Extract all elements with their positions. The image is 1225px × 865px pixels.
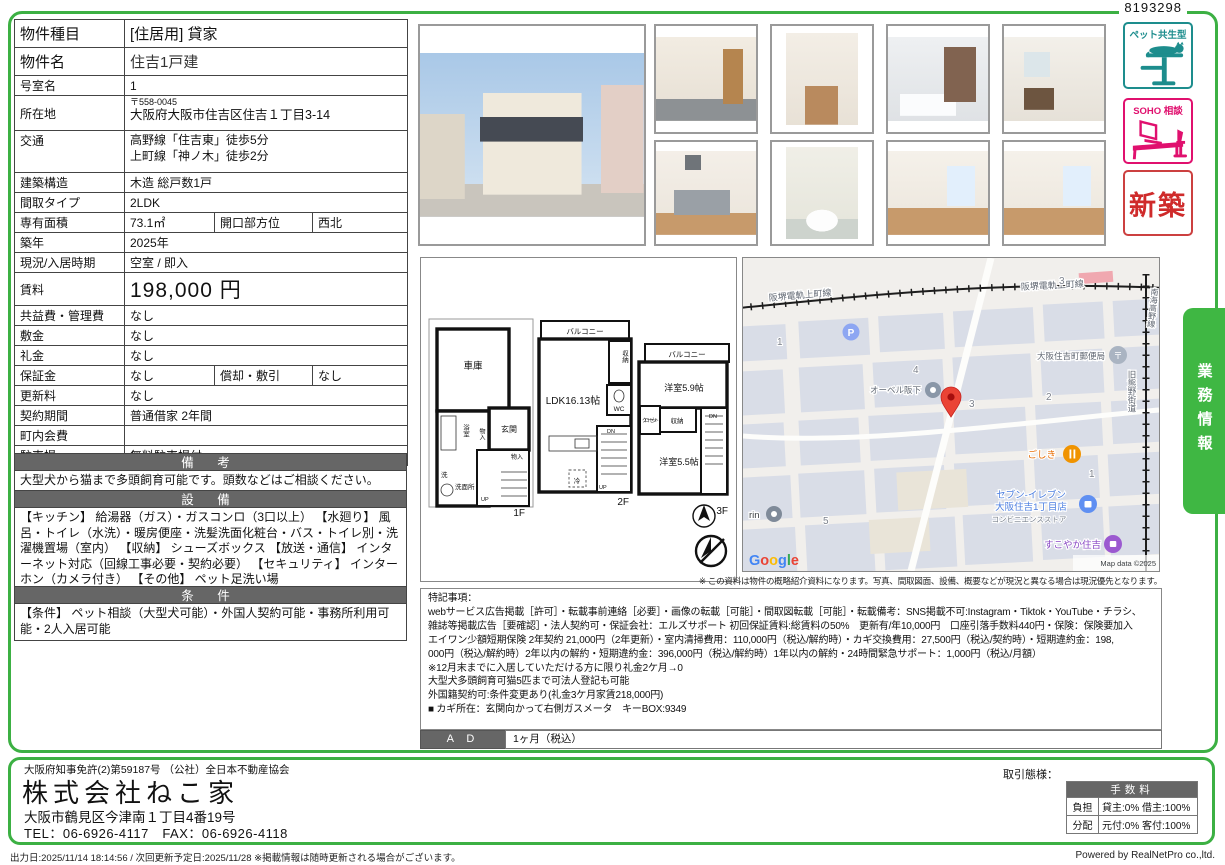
cell-label: 築年 — [15, 233, 125, 253]
photo-bathroom — [886, 24, 990, 134]
badge-soho-label: SOHO 相談 — [1133, 103, 1183, 117]
cell-label: 償却・敷引 — [215, 366, 313, 386]
restaurant-fork — [1070, 450, 1072, 459]
document-id: 8193298 — [1119, 0, 1187, 15]
block-number: 3 — [969, 399, 975, 410]
room-storage-3f: 収納 — [671, 416, 684, 425]
floorplan-box: 車庫 玄関 浴室 物入 物入 洗 洗面所 UP 1F バルコニー LDK16.1… — [420, 257, 737, 582]
store-bag — [1085, 501, 1092, 508]
table-row: 現況/入居時期空室 / 即入 — [15, 253, 408, 273]
balcony-2f: バルコニー — [566, 327, 603, 336]
cell-label: 物件名 — [15, 48, 125, 76]
table-row: 間取タイプ2LDK — [15, 193, 408, 213]
output-date-note: 出力日:2025/11/14 18:14:56 / 次回更新予定日:2025/1… — [10, 850, 461, 864]
table-row: 町内会費 — [15, 426, 408, 446]
room-ldk: LDK16.13帖 — [546, 394, 600, 407]
sukoyaka-label: すこやか住吉 — [1044, 539, 1101, 551]
transaction-type-title: 取引態様： — [1003, 766, 1058, 782]
conditions-text: 【条件】 ペット相談（大型犬可能）・外国人契約可能・事務所利用可能・2人入居可能 — [14, 603, 407, 641]
cell-value: 普通借家 2年間 — [125, 406, 408, 426]
cell-value: 73.1㎡ — [125, 213, 215, 233]
cell-value: 2LDK — [125, 193, 408, 213]
badge-soho: SOHO 相談 — [1123, 98, 1193, 164]
cell-label: 礼金 — [15, 346, 125, 366]
restaurant-icon — [1063, 445, 1081, 463]
block-number: 4 — [913, 365, 919, 376]
table-row: 賃料198,000 円 — [15, 273, 408, 306]
seven-eleven-label-2: 大阪住吉1丁目店 — [995, 501, 1067, 513]
cell-label: 現況/入居時期 — [15, 253, 125, 273]
table-row: 手数料 — [1067, 782, 1198, 798]
room-wash: 洗 — [441, 470, 448, 479]
ad-value: 1ヶ月（税込） — [505, 730, 1162, 749]
cell-label: 専有面積 — [15, 213, 125, 233]
floor-label-2f: 2F — [617, 497, 629, 508]
ad-label: A D — [420, 730, 506, 749]
special-notes-line: 雑誌等掲載広告［要確認］・法人契約可・保証会社：エルズサポート 初回保証賃料:総… — [428, 620, 1154, 634]
cell-value: 木造 総戸数1戸 — [125, 173, 408, 193]
photo-exterior — [418, 24, 646, 246]
convenience-store-label: コンビニエンスストア — [992, 515, 1067, 524]
fridge-space: 冷 — [574, 476, 581, 485]
table-row: 礼金なし — [15, 346, 408, 366]
stairs-dn-3f: DN — [709, 414, 717, 420]
cell-value: 2025年 — [125, 233, 408, 253]
access-line-2: 上町線「神ノ木」徒歩2分 — [130, 148, 402, 164]
cell-label: 号室名 — [15, 76, 125, 96]
property-table: 物件種目[住居用] 貸家 物件名住吉1戸建 号室名1 所在地〒558-0045大… — [14, 19, 408, 466]
photo-kitchen — [654, 140, 758, 246]
cell-label: 間取タイプ — [15, 193, 125, 213]
cell-value: なし — [313, 366, 408, 386]
balcony-3f: バルコニー — [668, 350, 705, 359]
badge-pet-friendly: ペット共生型 — [1123, 22, 1193, 89]
equipment-text: 【キッチン】 給湯器（ガス）・ガスコンロ（3口以上） 【水廻り】 風呂・トイレ（… — [14, 507, 407, 587]
special-notes-line: ※12月末までに入居していただける方に限り礼金2ケ月→0 — [428, 662, 1154, 676]
table-row: 共益費・管理費なし — [15, 306, 408, 326]
table-row: 契約期間普通借家 2年間 — [15, 406, 408, 426]
cell-label: 物件種目 — [15, 20, 125, 48]
restaurant-knife — [1074, 450, 1076, 459]
table-row: 物件種目[住居用] 貸家 — [15, 20, 408, 48]
powered-by: Powered by RealNetPro co.,ltd. — [1075, 850, 1215, 861]
cell-value: 西北 — [313, 213, 408, 233]
address-line: 大阪府大阪市住吉区住吉１丁目3-14 — [130, 108, 402, 122]
compass-small-icon — [693, 505, 715, 527]
special-notes-box: 特記事項： webサービス広告掲載［許可］・転載事前連絡［必要］・画像の転載［可… — [420, 588, 1162, 730]
room-wc: WC — [614, 406, 625, 413]
aubel-icon-dot — [930, 387, 936, 393]
room-western-55: 洋室5.5帖 — [659, 456, 699, 467]
business-info-tab-label: 業務情報 — [1194, 363, 1215, 459]
room-washroom: 洗面所 — [455, 482, 475, 491]
cell-label: 契約期間 — [15, 406, 125, 426]
cell-value: 1 — [125, 76, 408, 96]
block-number: 3 — [1059, 276, 1065, 287]
room-western-59: 洋室5.9帖 — [664, 382, 704, 393]
cell-label: 更新料 — [15, 386, 125, 406]
cell-value: なし — [125, 326, 408, 346]
goshiki-label: ごしき — [1027, 449, 1056, 461]
special-notes-line: 大型犬多頭飼育可猫5匹まで可法人登記も可能 — [428, 675, 1154, 689]
cell-value — [125, 426, 408, 446]
room-garage: 車庫 — [463, 360, 483, 372]
photo-entrance — [654, 24, 758, 134]
table-row: 建築構造木造 総戸数1戸 — [15, 173, 408, 193]
table-row: 号室名1 — [15, 76, 408, 96]
cell-label: 交通 — [15, 131, 125, 173]
equipment-header: 設 備 — [14, 490, 407, 508]
kumano-road-label: 旧熊野街道 — [1127, 370, 1137, 413]
special-notes-line: エイワン少額短期保険 2年契約 21,000円（2年更新）・室内清掃費用：110… — [428, 634, 1154, 648]
map-disclaimer: ※ この資料は物件の概略紹介資料になります。写真、間取図面、設備、概要などが現況… — [420, 575, 1162, 587]
room-storage-1: 物入 — [478, 427, 485, 440]
badge-new-label: 新築 — [1129, 184, 1187, 223]
block-number: 1 — [1089, 469, 1095, 480]
remarks-header: 備 考 — [14, 453, 407, 471]
access-line-1: 高野線「住吉東」徒歩5分 — [130, 132, 402, 148]
cell-value: 〒558-0045大阪府大阪市住吉区住吉１丁目3-14 — [125, 96, 408, 131]
stairs-dn-2f: DN — [607, 429, 615, 435]
table-row: 敷金なし — [15, 326, 408, 346]
compass-large-icon — [696, 536, 726, 566]
soho-desk-icon — [1129, 117, 1187, 161]
company-tel-fax: TEL：06-6926-4117 FAX：06-6926-4118 — [24, 823, 288, 842]
cell-value: なし — [125, 346, 408, 366]
table-row: 分配元付:0% 客付:100% — [1067, 816, 1198, 834]
photo-toilet — [770, 140, 874, 246]
cell-label: 保証金 — [15, 366, 125, 386]
map-canvas: 阪堺電軌上町線 阪堺電軌上町線 南海高野線 旧熊野街道 3 1 4 3 2 5 … — [743, 258, 1159, 571]
conditions-header: 条 件 — [14, 586, 407, 604]
stairs-up-1f: UP — [481, 497, 489, 503]
table-row: 保証金なし償却・敷引なし — [15, 366, 408, 386]
cell-label: 負担 — [1067, 798, 1099, 816]
table-row: 更新料なし — [15, 386, 408, 406]
badge-new-construction: 新築 — [1123, 170, 1193, 236]
property-pin-dot — [947, 393, 954, 400]
company-name: 株式会社ねこ家 — [22, 773, 239, 810]
table-row: 専有面積73.1㎡開口部方位西北 — [15, 213, 408, 233]
cell-value: [住居用] 貸家 — [125, 20, 408, 48]
cell-value: なし — [125, 386, 408, 406]
floorplan-drawing: 車庫 玄関 浴室 物入 物入 洗 洗面所 UP 1F バルコニー LDK16.1… — [421, 258, 736, 581]
cell-label: 共益費・管理費 — [15, 306, 125, 326]
table-row: 負担貸主:0% 借主:100% — [1067, 798, 1198, 816]
rin-icon-dot — [771, 511, 777, 517]
block-number: 5 — [823, 516, 829, 527]
stairs-up-2f: UP — [599, 485, 607, 491]
cell-value: 貸主:0% 借主:100% — [1099, 798, 1198, 816]
commission-header: 手数料 — [1067, 782, 1198, 798]
room-entry: 玄関 — [501, 424, 517, 434]
room-storage-2: 物入 — [511, 453, 523, 461]
special-notes-line: webサービス広告掲載［許可］・転載事前連絡［必要］・画像の転載［可能］・間取図… — [428, 606, 1154, 620]
cell-label: 所在地 — [15, 96, 125, 131]
property-sheet-page: 8193298 物件種目[住居用] 貸家 物件名住吉1戸建 号室名1 所在地〒5… — [0, 0, 1225, 865]
table-row: 物件名住吉1戸建 — [15, 48, 408, 76]
photo-bedroom-1 — [886, 140, 990, 246]
cell-label: 敷金 — [15, 326, 125, 346]
photo-washroom — [1002, 24, 1106, 134]
cell-value: なし — [125, 306, 408, 326]
sukoyaka-glyph — [1110, 541, 1117, 547]
block-number: 1 — [777, 337, 783, 348]
cell-value: 元付:0% 客付:100% — [1099, 816, 1198, 834]
cell-value: 住吉1戸建 — [125, 48, 408, 76]
cell-label: 町内会費 — [15, 426, 125, 446]
table-row: 所在地〒558-0045大阪府大阪市住吉区住吉１丁目3-14 — [15, 96, 408, 131]
block-number: 2 — [1046, 392, 1052, 403]
rin-label: rin — [749, 510, 760, 521]
postal-code: 〒558-0045 — [130, 97, 402, 108]
map-attribution: Map data ©2025 — [1100, 559, 1156, 568]
cat-tower-icon — [1129, 41, 1187, 87]
commission-table: 手数料 負担貸主:0% 借主:100% 分配元付:0% 客付:100% — [1066, 781, 1198, 834]
post-office-label: 大阪住吉町郵便局 — [1037, 351, 1105, 361]
room-closet-3f: クローゼット — [642, 417, 659, 424]
photo-bedroom-2 — [1002, 140, 1106, 246]
special-notes-line: ■ カギ所在：玄関向かって右側ガスメータ キーBOX:9349 — [428, 703, 1154, 717]
rent-value: 198,000 円 — [125, 273, 408, 306]
cell-label: 賃料 — [15, 273, 125, 306]
aubel-label: オーベル阪下 — [870, 385, 922, 395]
rent-amount: 198,000 円 — [130, 279, 242, 302]
cell-value: 高野線「住吉東」徒歩5分上町線「神ノ木」徒歩2分 — [125, 131, 408, 173]
table-row: 交通高野線「住吉東」徒歩5分上町線「神ノ木」徒歩2分 — [15, 131, 408, 173]
remarks-text: 大型犬から猫まで多頭飼育可能です。頭数などはご相談ください。 — [14, 470, 407, 491]
badge-pet-label: ペット共生型 — [1129, 27, 1186, 41]
post-mark: 〒 — [1113, 351, 1122, 361]
special-notes-line: 外国籍契約可:条件変更あり(礼金3ケ月家賃218,000円) — [428, 689, 1154, 703]
parking-p: P — [848, 328, 855, 339]
business-info-tab[interactable]: 業務情報 — [1183, 308, 1225, 514]
cell-label: 建築構造 — [15, 173, 125, 193]
location-map: 阪堺電軌上町線 阪堺電軌上町線 南海高野線 旧熊野街道 3 1 4 3 2 5 … — [742, 257, 1160, 572]
cell-label: 開口部方位 — [215, 213, 313, 233]
special-notes-title: 特記事項： — [428, 592, 1154, 606]
floor-label-3f: 3F — [716, 506, 728, 517]
special-notes-line: 000円（税込/解約時）2年以内の解約・短期違約金：396,000円（税込/解約… — [428, 648, 1154, 662]
photo-hallway — [770, 24, 874, 134]
cell-label: 分配 — [1067, 816, 1099, 834]
seven-eleven-label-1: セブン-イレブン — [996, 489, 1066, 501]
cell-value: なし — [125, 366, 215, 386]
cell-value: 空室 / 即入 — [125, 253, 408, 273]
table-row: 築年2025年 — [15, 233, 408, 253]
floor-label-1f: 1F — [513, 508, 525, 519]
google-logo: Google — [749, 553, 799, 569]
